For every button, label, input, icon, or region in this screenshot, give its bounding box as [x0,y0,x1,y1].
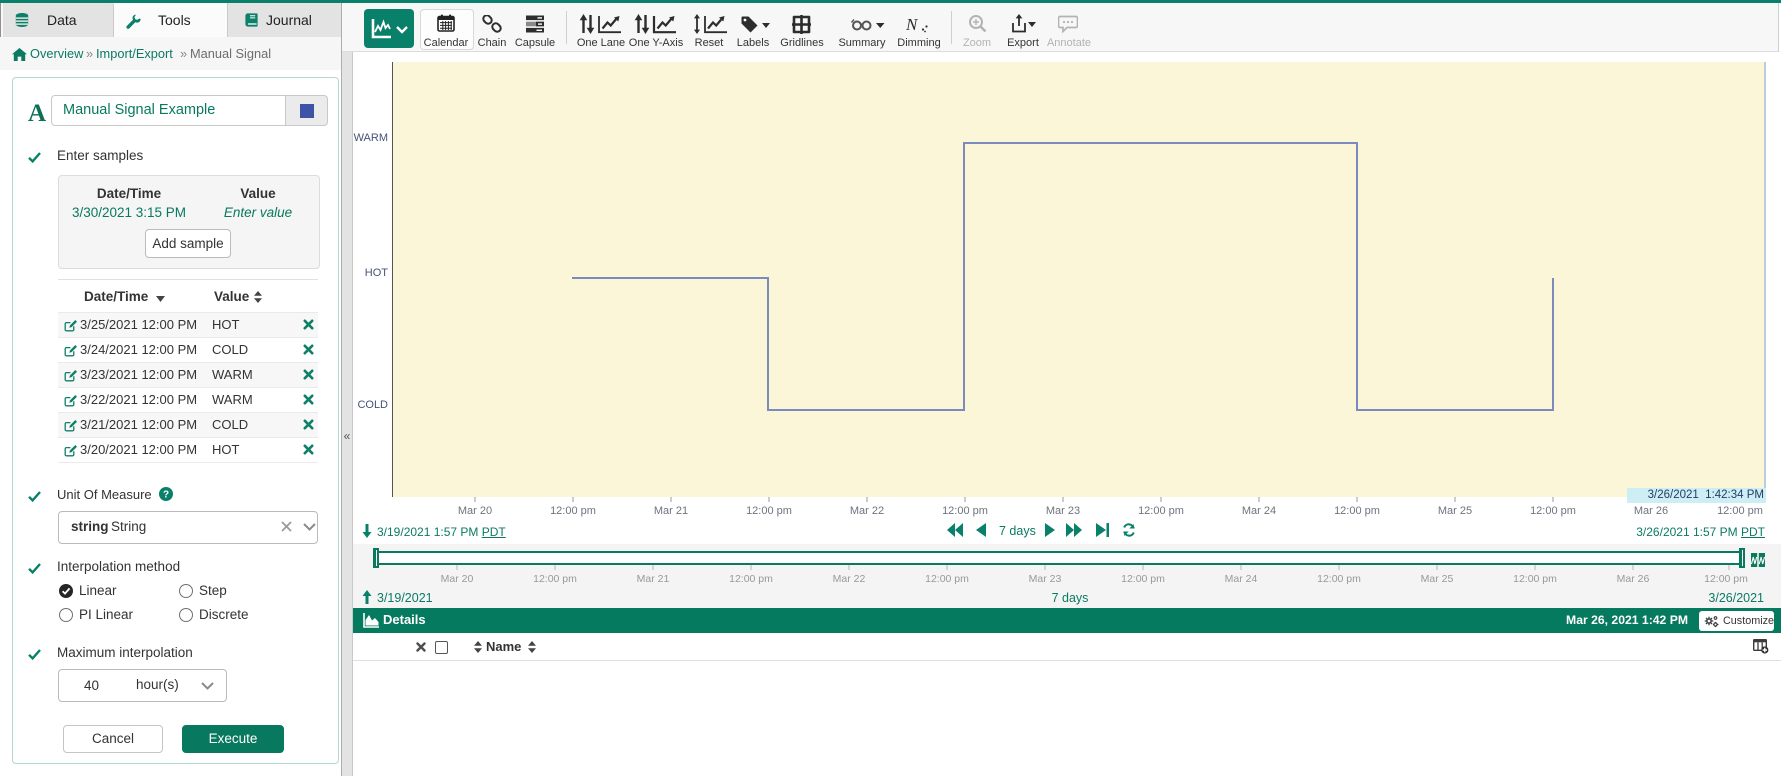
svg-text:?: ? [163,490,169,501]
svg-text:N: N [905,15,919,34]
